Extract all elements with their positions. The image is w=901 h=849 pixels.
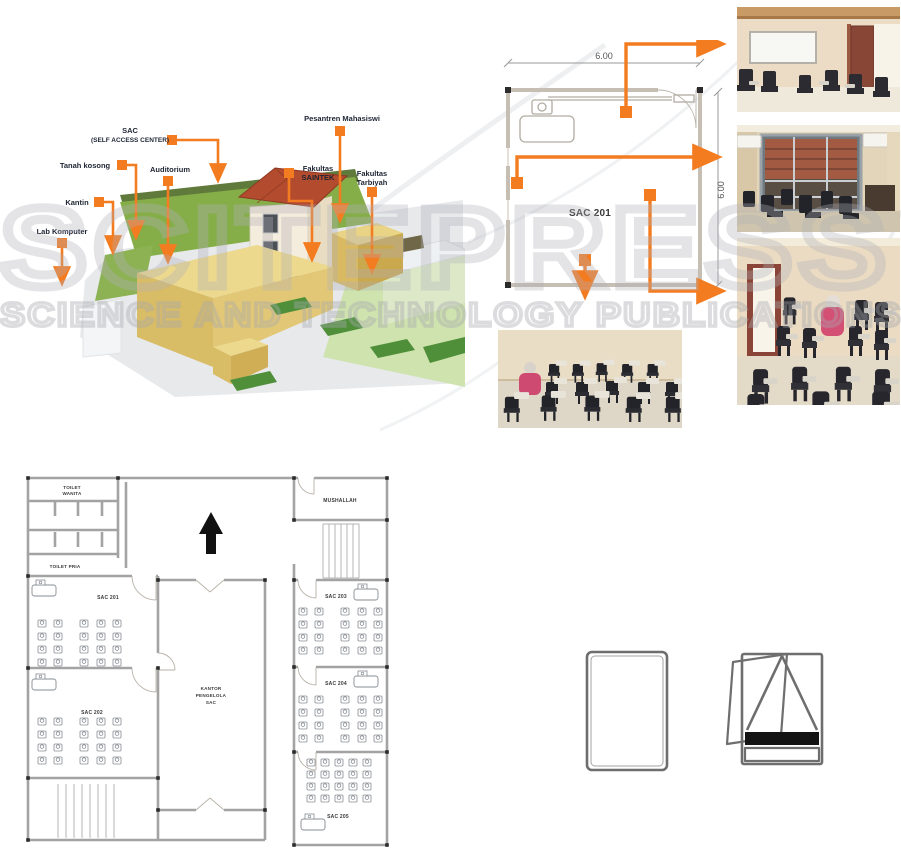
site-3d-render: SAC (SELF ACCESS CENTER) Tanah kosong Au… (25, 95, 465, 400)
door-arc (658, 90, 696, 128)
sketch-stand-flap (727, 654, 787, 744)
dimension-top: 6.00 (504, 51, 704, 67)
callout-square-lab (57, 238, 67, 248)
label-saintek-line2: SAINTEK (302, 173, 336, 182)
sac201-room-plan: 6.00 6.00 SAC 201 (490, 40, 735, 305)
stairs-mushallah (323, 524, 359, 578)
room-label-kantor-3: SAC (206, 700, 217, 705)
photo-window-side (737, 125, 900, 232)
chair-grid-sac203 (299, 608, 382, 654)
room-label-kantor-1: KANTOR (201, 686, 222, 691)
stairs-bottom-left (58, 784, 114, 838)
room-label-sac203: SAC 203 (325, 594, 347, 600)
label-pesantren: Pesantren Mahasiswi (304, 114, 380, 123)
sac-window-upper (263, 214, 278, 233)
dimension-right: 6.00 (714, 88, 726, 289)
callout-square-tarbiyah (367, 187, 377, 197)
room-label-sac201: SAC 201 (569, 208, 611, 219)
door-opening (753, 268, 775, 352)
room-label-mushallah: MUSHALLAH (323, 498, 357, 504)
person-head (524, 362, 536, 374)
label-kantin: Kantin (65, 198, 89, 207)
paper-figure-page: { "watermark": { "big": "SCITEPRESS", "s… (0, 0, 901, 849)
label-lab-komputer: Lab Komputer (37, 227, 88, 236)
north-arrow-icon (199, 512, 223, 554)
person-head (826, 295, 840, 309)
ac-unit-left (737, 135, 761, 148)
sketch-stand-lower (745, 748, 819, 761)
dim-right-value: 6.00 (716, 181, 726, 199)
chair-grid-sac201 (38, 620, 121, 666)
room-furniture (520, 95, 694, 142)
callout-square-pesantren (335, 126, 345, 136)
desk (865, 185, 895, 211)
photo-callout-arrows (511, 44, 720, 294)
label-tarbiyah-line1: Fakultas (357, 169, 387, 178)
room-label-toilet-wanita-1: TOILET (63, 485, 80, 490)
room-label-sac202: SAC 202 (81, 710, 103, 716)
chair-grid-sac202 (38, 718, 121, 764)
room-label-sac204: SAC 204 (325, 681, 347, 687)
label-sac-line2: (SELF ACCESS CENTER) (91, 137, 169, 144)
whiteboard (750, 32, 816, 63)
callout-square-auditorium (163, 176, 173, 186)
room-label-sac201: SAC 201 (97, 595, 119, 601)
dim-top-value: 6.00 (595, 51, 613, 61)
person-body (821, 307, 844, 336)
photo-rear-classroom (737, 238, 900, 405)
room-label-sac205: SAC 205 (327, 814, 349, 820)
sketch-stand-tray (745, 732, 819, 745)
label-saintek-line1: Fakultas (303, 164, 333, 173)
label-auditorium: Auditorium (150, 165, 190, 174)
room-label-toilet-pria: TOILET PRIA (50, 564, 81, 569)
wall-corner-markers (505, 87, 703, 288)
furniture-sketches (575, 640, 835, 780)
chair-grid-sac205 (307, 759, 371, 802)
callout-square-tanah (117, 160, 127, 170)
white-building (83, 299, 121, 357)
building-floor-plan: TOILET WANITA TOILET PRIA SAC 201 SAC 20… (20, 468, 422, 849)
room-label-kantor-2: PENGELOLA (196, 693, 227, 698)
photo-front-whiteboard (737, 7, 900, 112)
door-arcs (132, 478, 316, 810)
person-body (519, 373, 541, 395)
sketch-board-frame (587, 652, 667, 770)
callout-square-saintek (284, 168, 294, 178)
chair-grid-sac204 (299, 696, 382, 742)
photo-classroom-wide (498, 330, 682, 428)
label-tarbiyah-line2: Tarbiyah (357, 178, 388, 187)
label-tanah-kosong: Tanah kosong (60, 161, 111, 170)
callout-square-kantin (94, 197, 104, 207)
room-label-toilet-wanita-2: WANITA (63, 491, 82, 496)
label-sac-line1: SAC (122, 126, 138, 135)
